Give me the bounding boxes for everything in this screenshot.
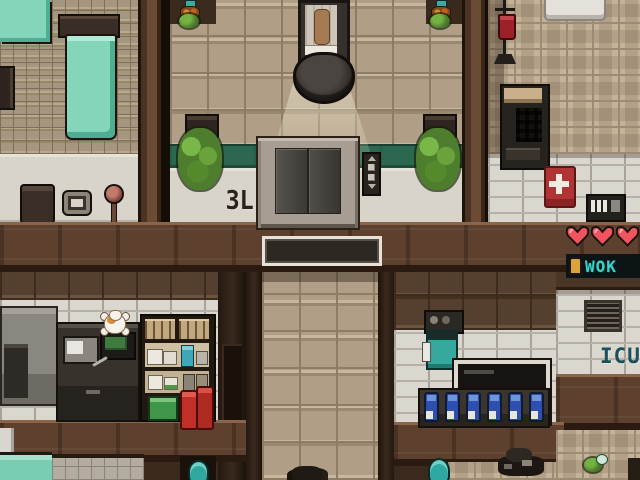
coffee-box[interactable] xyxy=(20,184,55,224)
bed[interactable] xyxy=(0,0,50,42)
bottle-row xyxy=(424,394,544,422)
lower-alcove xyxy=(180,456,216,480)
intercom-speaker xyxy=(611,200,620,212)
grey-cabinet[interactable] xyxy=(0,306,58,406)
monitor-screen xyxy=(105,337,127,350)
surgical-lamp[interactable] xyxy=(293,52,355,104)
gurney[interactable] xyxy=(544,0,606,21)
blue-bottle xyxy=(529,392,544,422)
first-aid-kit[interactable] xyxy=(544,166,576,208)
lens xyxy=(430,316,438,324)
iv-stand[interactable] xyxy=(492,0,518,66)
cabinet-shelf xyxy=(504,88,542,103)
call-down-arrow xyxy=(368,184,376,189)
hearts-row xyxy=(566,224,639,248)
microwave[interactable] xyxy=(63,336,99,364)
intercom-bar xyxy=(603,200,607,212)
intercom[interactable] xyxy=(586,194,626,222)
lens xyxy=(442,316,450,324)
game-viewport: 3L xyxy=(0,0,640,480)
wall-fixture xyxy=(0,68,13,108)
blood-bag xyxy=(498,14,516,40)
edge-object xyxy=(628,458,640,480)
elevator-call-panel[interactable] xyxy=(362,152,381,196)
junk-pile[interactable] xyxy=(496,448,548,480)
red-canister xyxy=(196,386,214,430)
white-box xyxy=(147,349,163,365)
doormat xyxy=(262,236,382,266)
heart-icon xyxy=(616,224,639,248)
case-glare xyxy=(464,370,494,374)
counter-handle xyxy=(86,390,100,394)
call-up-arrow xyxy=(368,156,376,161)
bed-mattress xyxy=(65,34,117,140)
lab-device xyxy=(4,344,28,398)
cat-head xyxy=(109,310,122,321)
icu-south-wall-right xyxy=(556,374,640,430)
intercom-bar xyxy=(591,200,595,212)
teal-barrel[interactable] xyxy=(428,458,450,480)
blue-bottle xyxy=(445,392,460,422)
junk xyxy=(522,460,532,466)
shelf-drawer[interactable] xyxy=(145,319,175,339)
lab-counter[interactable] xyxy=(56,322,140,422)
blue-bottle xyxy=(466,392,481,422)
microwave-window xyxy=(67,341,83,354)
cat[interactable] xyxy=(100,310,130,337)
cabinet-drawer xyxy=(506,148,540,160)
bed-headboard xyxy=(60,16,118,36)
elevator[interactable] xyxy=(258,138,358,228)
blue-bottle xyxy=(487,392,502,422)
icu-sign: ICU xyxy=(600,346,640,367)
bottle-counter[interactable] xyxy=(418,388,550,428)
shelf-row xyxy=(145,343,209,367)
heart-icon xyxy=(566,224,589,248)
cabinet-buttons xyxy=(516,108,542,142)
dark-plant xyxy=(292,466,322,480)
potted-plant xyxy=(178,114,222,202)
white-box xyxy=(163,351,177,365)
lab-wall-top xyxy=(0,272,246,300)
blue-bottle xyxy=(424,392,439,422)
corridor-floor xyxy=(262,272,378,480)
small-jar xyxy=(196,351,208,365)
plate[interactable] xyxy=(62,190,92,216)
heart-icon xyxy=(591,224,614,248)
icu-wall-top xyxy=(394,272,556,330)
white-box xyxy=(148,375,163,390)
lamp-icon xyxy=(569,257,582,275)
corridor-wall xyxy=(378,272,394,480)
plant-bush xyxy=(178,128,222,190)
shelf-drawer[interactable] xyxy=(179,319,209,339)
wall-planter xyxy=(177,0,201,30)
potted-plant xyxy=(416,114,460,202)
floor-sign: 3L xyxy=(226,188,254,214)
elevator-door-left xyxy=(276,149,307,213)
cross-icon xyxy=(549,181,569,187)
monitor-cabinet[interactable] xyxy=(500,84,550,170)
junk xyxy=(504,464,512,469)
green-label-box xyxy=(164,377,178,390)
planter-leaves xyxy=(179,14,199,28)
elevator-doors[interactable] xyxy=(275,148,341,214)
small-plant xyxy=(584,454,608,476)
iv-hanger xyxy=(495,8,515,11)
location-ticker: WOK xyxy=(566,254,640,278)
red-canisters[interactable] xyxy=(180,386,212,428)
sprout-bud xyxy=(596,454,608,465)
corridor-wall xyxy=(246,272,262,480)
lower-room-floor xyxy=(52,454,144,480)
teal-floor xyxy=(0,452,52,480)
round-stand[interactable] xyxy=(105,186,123,226)
wall-planter xyxy=(428,0,452,30)
blue-bottle xyxy=(508,392,523,422)
intercom-bar xyxy=(597,200,601,212)
teal-barrel[interactable] xyxy=(188,460,209,480)
planter-leaves xyxy=(430,14,450,28)
bed[interactable] xyxy=(60,16,118,138)
call-button[interactable] xyxy=(368,174,375,181)
green-crate[interactable] xyxy=(148,396,178,421)
iv-base xyxy=(494,54,516,64)
machine-tank xyxy=(422,342,431,362)
plant-bush xyxy=(416,128,460,190)
stand-head xyxy=(106,186,122,202)
ticker-text: WOK xyxy=(585,257,617,276)
corridor-floor-shadow xyxy=(262,272,378,282)
call-button[interactable] xyxy=(368,164,375,171)
patient xyxy=(314,9,330,45)
vent-grate xyxy=(584,300,622,332)
teal-bottle xyxy=(181,345,194,367)
elevator-door-right xyxy=(309,149,340,213)
